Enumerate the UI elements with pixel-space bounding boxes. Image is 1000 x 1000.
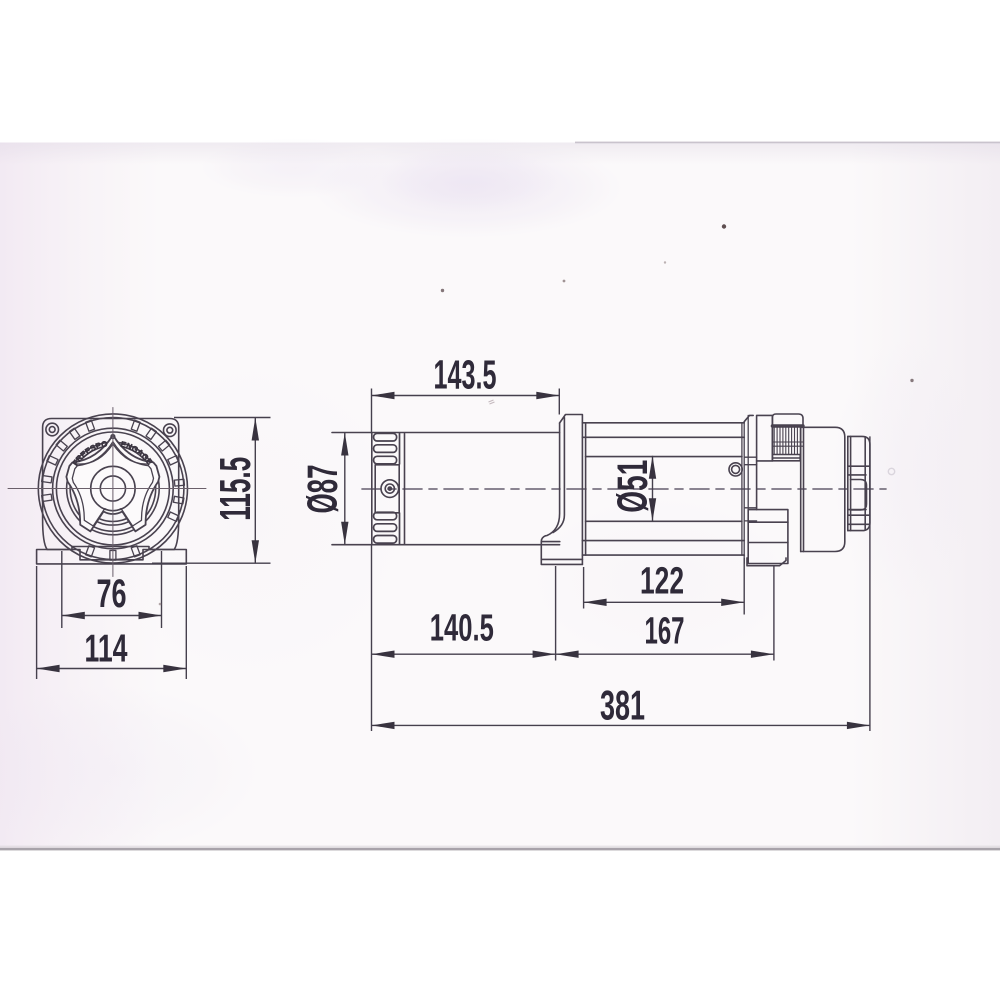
svg-text:140.5: 140.5 [430, 608, 494, 650]
svg-text:381: 381 [600, 682, 645, 729]
svg-text:167: 167 [645, 611, 685, 653]
svg-text:Ø51: Ø51 [609, 460, 657, 513]
svg-text:76: 76 [97, 572, 127, 616]
svg-text:115.5: 115.5 [211, 457, 260, 521]
svg-text:143.5: 143.5 [434, 352, 497, 398]
svg-text:Ø87: Ø87 [299, 465, 347, 514]
svg-text:122: 122 [640, 561, 684, 603]
svg-text:114: 114 [85, 628, 128, 671]
